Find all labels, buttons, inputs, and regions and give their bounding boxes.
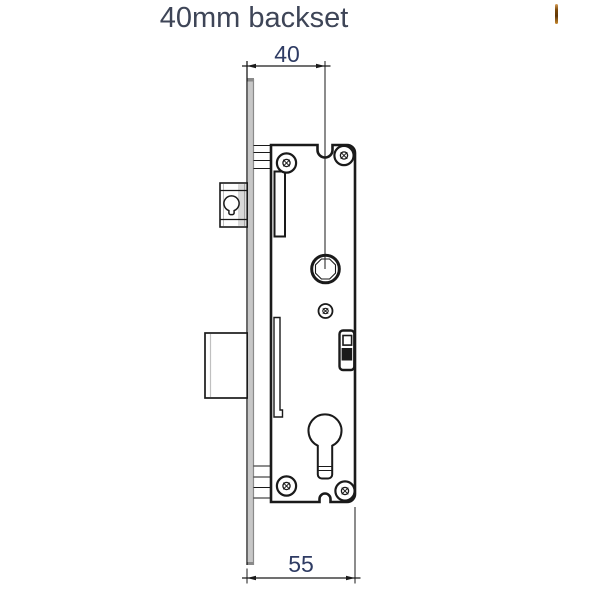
dimension-arrow-right xyxy=(316,64,325,69)
dimension-arrow-left xyxy=(247,64,256,69)
dimension-arrow-left xyxy=(247,576,256,581)
faceplate xyxy=(247,61,255,565)
cropped-edge-artifact xyxy=(555,4,558,24)
latch-guide xyxy=(275,172,286,237)
page: 40mm backset 40 55 xyxy=(0,0,600,600)
lock-drawing xyxy=(0,0,600,600)
screw-bottom-left xyxy=(277,476,296,495)
latch-bolt xyxy=(220,183,248,227)
screw-bottom-right xyxy=(335,481,354,500)
adjuster-screw xyxy=(319,304,333,318)
deadbolt xyxy=(205,333,248,398)
case-depth-dimension xyxy=(242,507,361,584)
screw-top-right xyxy=(334,146,353,165)
fore-end-lines xyxy=(254,146,271,499)
dimension-arrow-right xyxy=(346,576,355,581)
screw-top-left xyxy=(277,153,296,172)
snib-slider xyxy=(340,331,355,371)
